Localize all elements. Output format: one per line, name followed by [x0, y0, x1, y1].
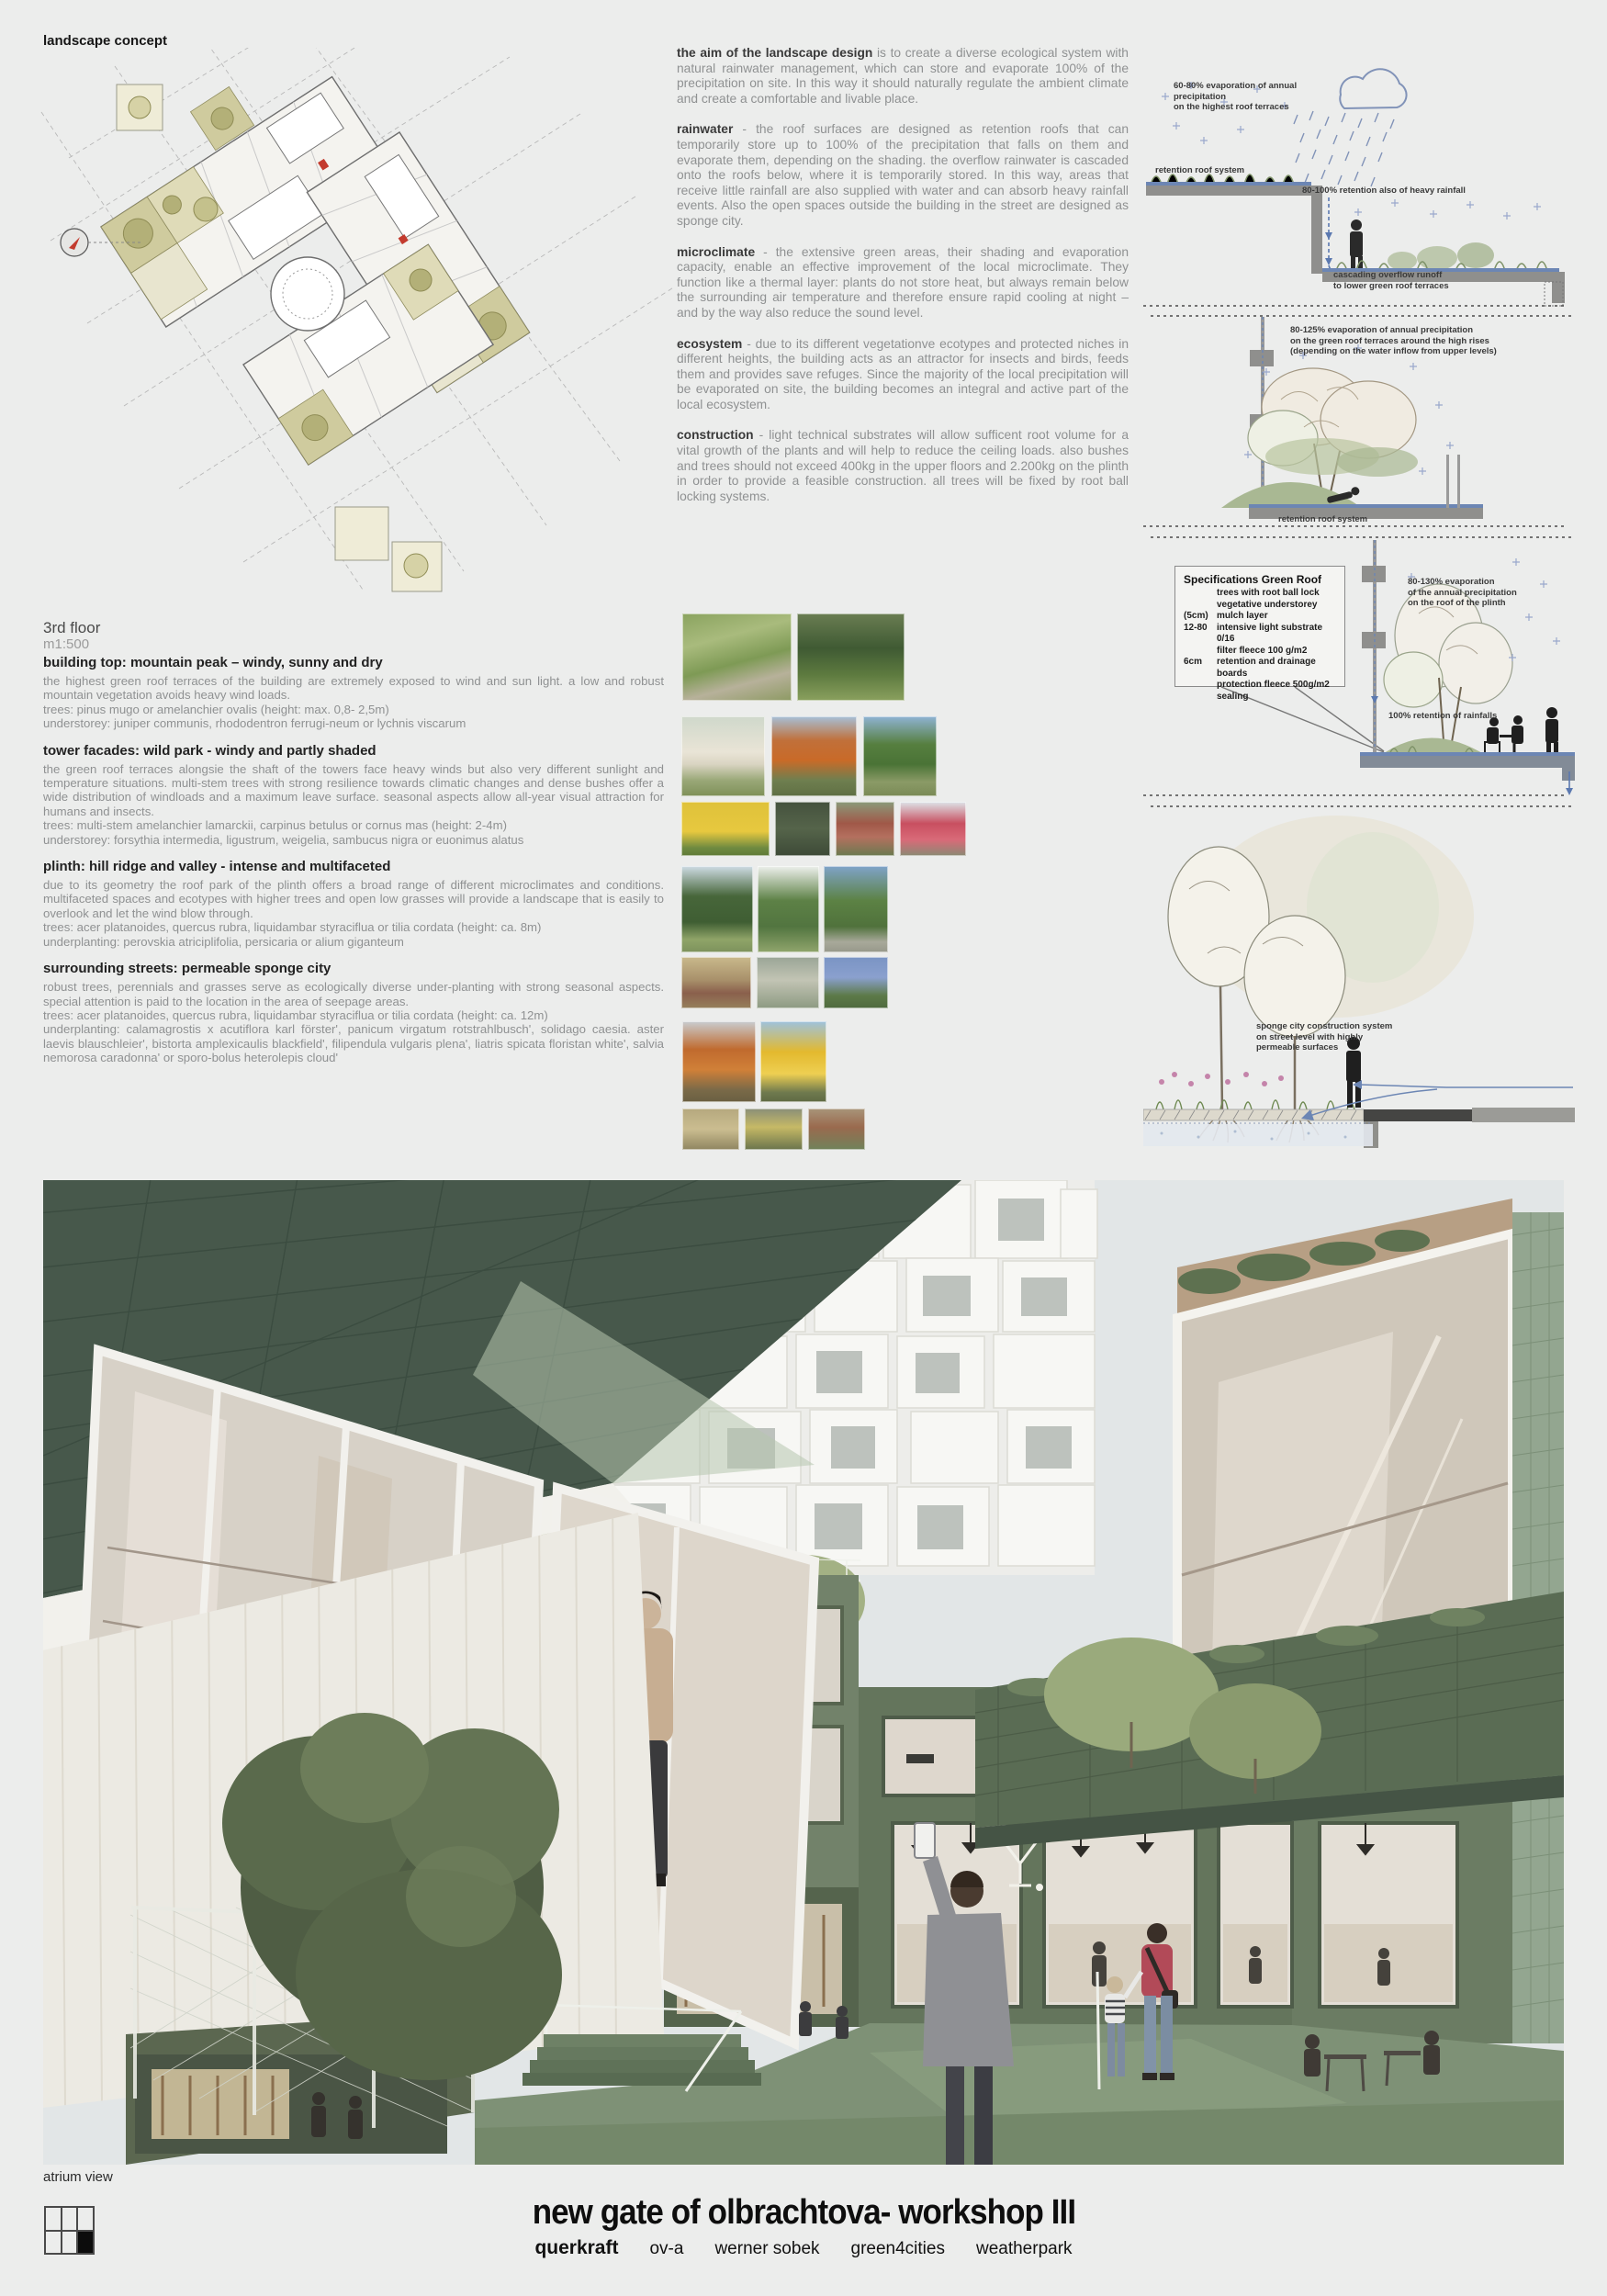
spec-row: sealing: [1184, 692, 1339, 703]
spec-row: 6cmretention and drainage boards: [1184, 657, 1339, 680]
photo-blue-salvia: [824, 957, 888, 1008]
section-body: the green roof terraces alongsie the sha…: [43, 762, 664, 819]
paragraph-ecosystem: ecosystem - due to its different vegetat…: [677, 337, 1129, 413]
spec-row: filter fleece 100 g/m2: [1184, 646, 1339, 658]
credit-green4cities: green4cities: [851, 2239, 945, 2259]
plan-caption: 3rd floor: [43, 619, 100, 637]
rain-icon: [1294, 111, 1394, 186]
ecotype-sections: building top: mountain peak – windy, sun…: [43, 643, 664, 1065]
section-streets: surrounding streets: permeable sponge ci…: [43, 961, 664, 1064]
label-evaporation-plinth: 80-130% evaporation of the annual precip…: [1408, 577, 1536, 609]
label-cascading-runoff: cascading overflow runoff to lower green…: [1333, 270, 1494, 291]
spec-row: protection fleece 500g/m2: [1184, 680, 1339, 692]
section-plinth: plinth: hill ridge and valley - intense …: [43, 859, 664, 949]
paragraph-construction: construction - light technical substrate…: [677, 428, 1129, 504]
photo-yellow-perennials: [745, 1109, 803, 1150]
section-building-top: building top: mountain peak – windy, sun…: [43, 655, 664, 731]
diagram-sponge-city: [1143, 806, 1575, 1148]
grass-understory: [1156, 1100, 1354, 1109]
rain-cloud-icon: [1340, 69, 1406, 108]
section-underplanting: underplanting: perovskia atriciplifolia,…: [43, 935, 664, 949]
green-roof-spec-box: Specifications Green Roof trees with roo…: [1174, 566, 1345, 687]
spec-row: trees with root ball lock: [1184, 588, 1339, 600]
section-trees: trees: acer platanoides, quercus rubra, …: [43, 1008, 664, 1022]
section-trees: trees: multi-stem amelanchier lamarckii,…: [43, 818, 664, 832]
photo-red-shrub: [836, 802, 894, 856]
photo-groundcover: [808, 1109, 865, 1150]
spec-title: Specifications Green Roof: [1184, 573, 1339, 586]
photo-flower-meadow: [757, 957, 819, 1008]
paragraph-rainwater: rainwater - the roof surfaces are design…: [677, 122, 1129, 229]
photo-street-tree-orange: [682, 1021, 756, 1102]
section-underplanting: underplanting: calamagrostis x acutiflor…: [43, 1022, 664, 1064]
photo-forsythia: [681, 802, 770, 856]
credit-weatherpark: weatherpark: [976, 2239, 1073, 2259]
floor-plan-drawing: [32, 48, 675, 613]
photo-amelanchier-bloom: [681, 716, 765, 796]
section-body: robust trees, perennials and grasses ser…: [43, 980, 664, 1008]
photo-alpine-rock-garden: [682, 613, 792, 701]
permeable-pavement: [1143, 1109, 1364, 1120]
walkway-strip: [1364, 1109, 1472, 1121]
spec-row: vegetative understorey: [1184, 600, 1339, 612]
atrium-rendering: co/work.: [43, 1180, 1564, 2165]
label-retention-rainfalls: 100% retention of rainfalls: [1388, 711, 1545, 722]
photo-acer-tree: [681, 866, 753, 952]
section-understorey: understorey: forsythia intermedia, ligus…: [43, 833, 664, 847]
spec-row: 12-80intensive light substrate 0/16: [1184, 623, 1339, 646]
section-trees: trees: acer platanoides, quercus rubra, …: [43, 920, 664, 934]
section-body: due to its geometry the roof park of the…: [43, 878, 664, 920]
paragraph-aim: the aim of the landscape design is to cr…: [677, 46, 1129, 107]
label-retention-roof-1: retention roof system: [1155, 165, 1275, 176]
photo-pinus-mugo: [797, 613, 905, 701]
section-heading: surrounding streets: permeable sponge ci…: [43, 961, 664, 976]
photo-ornamental-grasses: [682, 1109, 739, 1150]
photo-multistem-orange: [771, 716, 857, 796]
section-heading: building top: mountain peak – windy, sun…: [43, 655, 664, 670]
section-tower-facades: tower facades: wild park - windy and par…: [43, 743, 664, 847]
paragraph-microclimate: microclimate - the extensive green areas…: [677, 245, 1129, 321]
photo-multistem-green: [863, 716, 937, 796]
presentation-board: landscape concept: [0, 0, 1607, 2296]
person-standing-silhouette: [1545, 707, 1558, 756]
photo-quercus-tree: [758, 866, 819, 952]
section-heading: plinth: hill ridge and valley - intense …: [43, 859, 664, 874]
person-silhouette: [1350, 219, 1363, 273]
photo-tilia-tree: [824, 866, 888, 952]
section-heading: tower facades: wild park - windy and par…: [43, 743, 664, 759]
label-evaporation-highrise: 80-125% evaporation of annual precipitat…: [1290, 325, 1529, 357]
project-title: new gate of olbrachtova- workshop III: [0, 2193, 1607, 2233]
photo-euonymus-bush: [900, 802, 966, 856]
section-trees: trees: pinus mugo or amelanchier ovalis …: [43, 703, 664, 716]
photo-persicaria-grasses: [681, 957, 751, 1008]
photo-hedge: [775, 802, 830, 856]
section-body: the highest green roof terraces of the b…: [43, 674, 664, 703]
credit-ova: ov-a: [649, 2239, 683, 2259]
credit-werner-sobek: werner sobek: [714, 2239, 819, 2259]
spec-row: (5cm)mulch layer: [1184, 611, 1339, 623]
credit-querkraft: querkraft: [534, 2237, 618, 2259]
street-slab: [1472, 1108, 1575, 1122]
photo-street-tree-yellow: [760, 1021, 826, 1102]
vegetation-lower-roof: [1336, 242, 1547, 271]
tree-sketch: [1248, 368, 1416, 501]
label-sponge-city: sponge city construction system on stree…: [1256, 1021, 1431, 1053]
credits-row: querkraft ov-a werner sobek green4cities…: [0, 2237, 1607, 2259]
cascade-arrows: [1325, 197, 1340, 274]
landscape-concept-label: landscape concept: [43, 33, 167, 49]
atrium-view-label: atrium view: [43, 2169, 113, 2185]
label-evaporation-top: 60-80% evaporation of annual precipitati…: [1174, 81, 1330, 113]
concept-text-column: the aim of the landscape design is to cr…: [677, 46, 1129, 520]
groundwater: [1143, 1124, 1373, 1146]
section-understorey: understorey: juniper communis, rhododent…: [43, 716, 664, 730]
label-retention-heavy-rain: 80-100% retention also of heavy rainfall: [1302, 186, 1523, 197]
label-retention-roof-2: retention roof system: [1278, 514, 1416, 525]
